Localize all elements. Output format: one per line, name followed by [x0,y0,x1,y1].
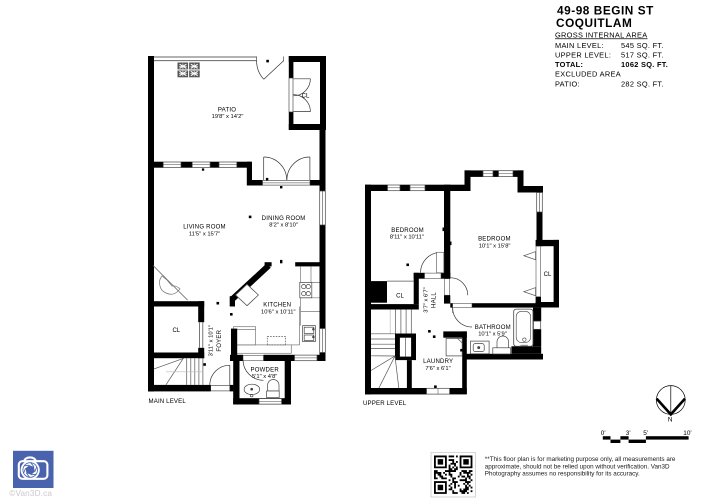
svg-text:EXCLUDED AREA: EXCLUDED AREA [555,70,621,79]
svg-text:BEDROOM: BEDROOM [478,237,511,243]
svg-text:BEDROOM: BEDROOM [391,228,424,234]
svg-text:7'6" x 6'1": 7'6" x 6'1" [425,366,450,372]
svg-text:BATHROOM: BATHROOM [475,325,511,331]
svg-text:UPPER LEVEL:: UPPER LEVEL: [555,51,611,60]
svg-text:517 SQ. FT.: 517 SQ. FT. [621,51,664,60]
svg-text:approximate, should not be rel: approximate, should not be relied upon w… [485,463,670,470]
svg-text:CL: CL [302,94,310,100]
svg-text:CL: CL [172,328,180,334]
svg-text:PATIO: PATIO [218,108,236,114]
svg-text:8'11" x 10'11": 8'11" x 10'11" [390,235,424,241]
svg-text:5': 5' [643,430,648,437]
svg-text:282 SQ. FT.: 282 SQ. FT. [621,79,664,88]
svg-text:POWDER: POWDER [250,367,279,373]
svg-text:DINING ROOM: DINING ROOM [262,216,306,222]
svg-text:N: N [668,417,673,424]
svg-text:PATIO:: PATIO: [555,79,580,88]
svg-text:GROSS INTERNAL AREA: GROSS INTERNAL AREA [555,30,648,39]
svg-text:3'11" x 10'1": 3'11" x 10'1" [209,325,215,356]
svg-text:©Van3D.ca: ©Van3D.ca [9,489,52,498]
svg-text:MAIN LEVEL: MAIN LEVEL [149,398,187,405]
svg-text:3': 3' [626,430,631,437]
svg-text:UPPER LEVEL: UPPER LEVEL [363,400,407,407]
svg-text:5'1" x 4'8": 5'1" x 4'8" [252,374,277,380]
svg-text:CL: CL [396,293,404,299]
svg-text:FOYER: FOYER [217,329,223,351]
svg-text:LAUNDRY: LAUNDRY [423,359,453,365]
svg-text:8'2" x 8'10": 8'2" x 8'10" [269,223,298,229]
svg-text:10'6" x 10'11": 10'6" x 10'11" [261,310,296,316]
svg-text:**This floor plan is for marke: **This floor plan is for marketing purpo… [485,456,676,463]
svg-text:HALL: HALL [431,292,437,308]
svg-text:KITCHEN: KITCHEN [263,303,291,309]
svg-text:Photography assumes no respons: Photography assumes no responsibility fo… [485,471,640,478]
svg-text:TOTAL:: TOTAL: [555,60,583,69]
svg-text:10'1" x 15'8": 10'1" x 15'8" [479,243,511,249]
svg-text:LIVING ROOM: LIVING ROOM [183,225,226,231]
svg-text:10': 10' [683,430,691,437]
svg-text:1062 SQ. FT.: 1062 SQ. FT. [621,60,668,69]
svg-text:COQUITLAM: COQUITLAM [556,16,632,30]
svg-text:11'5" x 15'7": 11'5" x 15'7" [189,231,220,237]
svg-text:MAIN LEVEL:: MAIN LEVEL: [555,41,604,50]
svg-text:CL: CL [544,272,552,278]
svg-text:19'8" x 14'2": 19'8" x 14'2" [212,114,244,120]
svg-text:0': 0' [601,430,606,437]
svg-text:3'7" x 6'7": 3'7" x 6'7" [423,287,429,312]
svg-text:545 SQ. FT.: 545 SQ. FT. [621,41,664,50]
